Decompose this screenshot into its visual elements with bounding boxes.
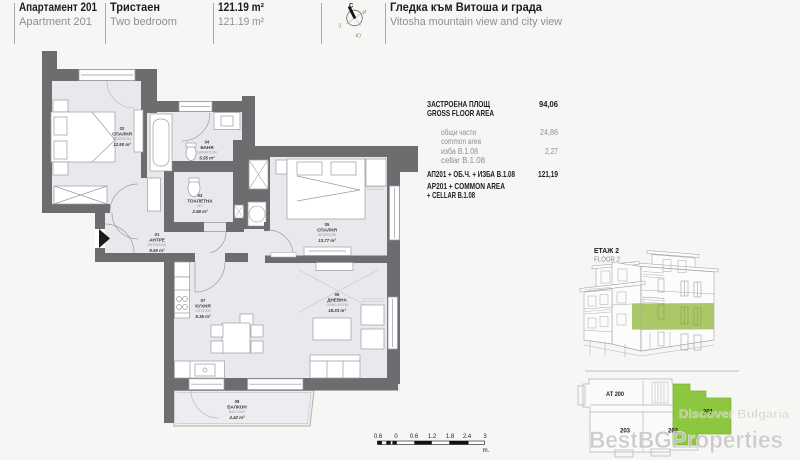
svg-text:СПАЛНЯ: СПАЛНЯ: [112, 132, 132, 137]
svg-text:общи части: общи части: [441, 128, 476, 137]
svg-text:07: 07: [201, 298, 206, 303]
svg-text:02: 02: [120, 126, 125, 131]
svg-text:common area: common area: [441, 137, 481, 146]
svg-text:+ CELLAR B.1.08: + CELLAR B.1.08: [427, 190, 475, 200]
svg-text:Two bedroom: Two bedroom: [110, 16, 177, 28]
svg-text:BATHROOM: BATHROOM: [197, 151, 217, 155]
svg-text:06: 06: [335, 292, 340, 297]
svg-text:121.19 m²: 121.19 m²: [218, 2, 264, 14]
svg-text:04: 04: [205, 140, 210, 145]
svg-text:1.2: 1.2: [428, 434, 437, 440]
svg-text:03: 03: [198, 193, 203, 198]
svg-text:01: 01: [155, 232, 160, 237]
svg-text:2.4: 2.4: [463, 434, 472, 440]
svg-text:БАНЯ: БАНЯ: [200, 145, 213, 150]
svg-text:WC: WC: [197, 204, 203, 208]
svg-text:ДНЕВНА: ДНЕВНА: [327, 298, 347, 303]
svg-text:13.77 m²: 13.77 m²: [318, 238, 336, 243]
svg-text:BALCONY: BALCONY: [229, 410, 246, 414]
svg-text:LIVING ROOM: LIVING ROOM: [326, 303, 349, 307]
svg-text:ТОАЛЕТНА: ТОАЛЕТНА: [187, 199, 213, 204]
svg-text:Vitosha mountain view and city: Vitosha mountain view and city view: [390, 16, 562, 28]
svg-text:9.35 m²: 9.35 m²: [195, 314, 211, 319]
svg-text:Тристаен: Тристаен: [110, 2, 160, 14]
svg-text:BestBGProperties: BestBGProperties: [589, 427, 783, 454]
svg-text:АНТРЕ: АНТРЕ: [149, 238, 165, 243]
svg-text:И: И: [363, 10, 367, 16]
svg-text:94,06: 94,06: [539, 99, 558, 109]
svg-text:0.6: 0.6: [410, 434, 419, 440]
svg-text:АП201 + ОБ.Ч. + ИЗБА B.1.08: АП201 + ОБ.Ч. + ИЗБА B.1.08: [427, 169, 515, 179]
svg-text:KITCHEN: KITCHEN: [196, 309, 211, 313]
svg-text:Апартамент 201: Апартамент 201: [19, 2, 98, 14]
svg-text:24,86: 24,86: [540, 128, 558, 137]
svg-text:8.50 m²: 8.50 m²: [149, 248, 165, 253]
svg-text:cellar B.1.08: cellar B.1.08: [441, 156, 486, 165]
svg-text:изба B.1.08: изба B.1.08: [441, 147, 478, 156]
svg-text:АТ 200: АТ 200: [606, 392, 625, 398]
svg-text:ЕТАЖ 2: ЕТАЖ 2: [594, 246, 619, 255]
svg-text:Apartment 201: Apartment 201: [19, 16, 92, 28]
svg-text:05: 05: [325, 222, 330, 227]
svg-text:СПАЛНЯ: СПАЛНЯ: [317, 228, 337, 233]
svg-text:121.19 m²: 121.19 m²: [218, 16, 264, 28]
svg-text:5.55 m²: 5.55 m²: [199, 156, 215, 161]
svg-text:08: 08: [235, 399, 240, 404]
svg-text:С: С: [349, 4, 354, 10]
svg-text:БАЛКОН: БАЛКОН: [227, 405, 247, 410]
svg-text:ENTRANCE: ENTRANCE: [148, 243, 167, 247]
svg-text:2,27: 2,27: [545, 147, 558, 156]
svg-text:m.: m.: [483, 448, 490, 454]
svg-text:18.33 m²: 18.33 m²: [328, 308, 346, 313]
svg-text:0.6: 0.6: [374, 434, 383, 440]
svg-text:121,19: 121,19: [538, 169, 558, 179]
svg-text:4.42 m²: 4.42 m²: [228, 415, 245, 420]
svg-text:2.58 m²: 2.58 m²: [191, 209, 208, 214]
svg-text:12.50 m²: 12.50 m²: [113, 142, 131, 147]
svg-text:Discover Bulgaria: Discover Bulgaria: [679, 409, 790, 421]
svg-text:1.8: 1.8: [446, 434, 455, 440]
svg-text:КУХНЯ: КУХНЯ: [195, 304, 210, 309]
svg-text:Гледка към Витоша и града: Гледка към Витоша и града: [390, 2, 543, 14]
svg-text:Ю: Ю: [356, 34, 362, 40]
svg-text:GROSS FLOOR AREA: GROSS FLOOR AREA: [427, 108, 494, 118]
svg-text:BEDROOM: BEDROOM: [113, 137, 131, 141]
svg-text:BEDROOM: BEDROOM: [318, 233, 336, 237]
